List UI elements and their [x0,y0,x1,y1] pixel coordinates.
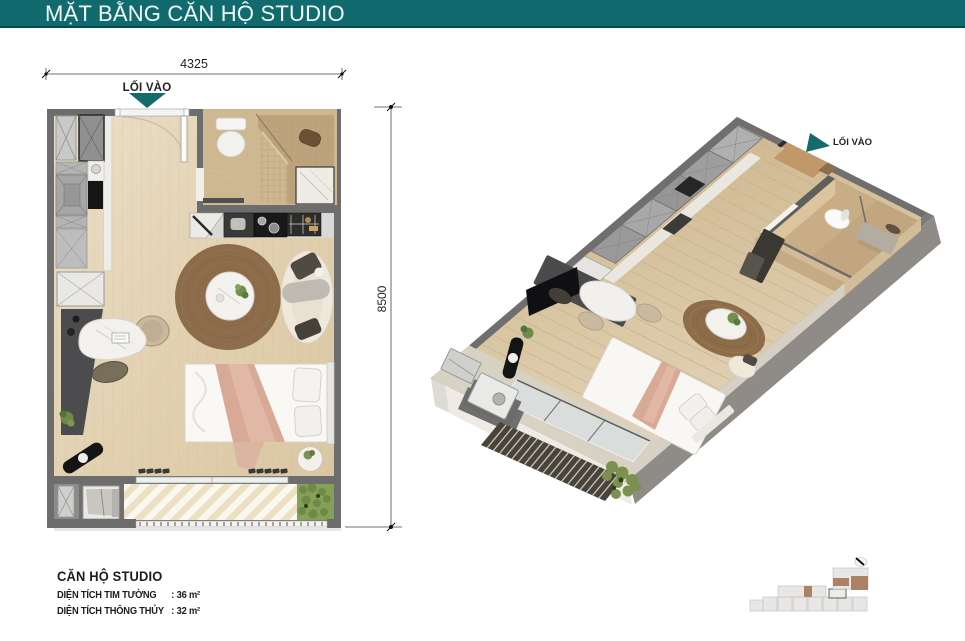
svg-text:4325: 4325 [180,57,208,71]
svg-text:LỐI VÀO: LỐI VÀO [123,80,172,94]
svg-text:8500: 8500 [375,285,389,312]
svg-text:LỐI VÀO: LỐI VÀO [833,136,872,148]
